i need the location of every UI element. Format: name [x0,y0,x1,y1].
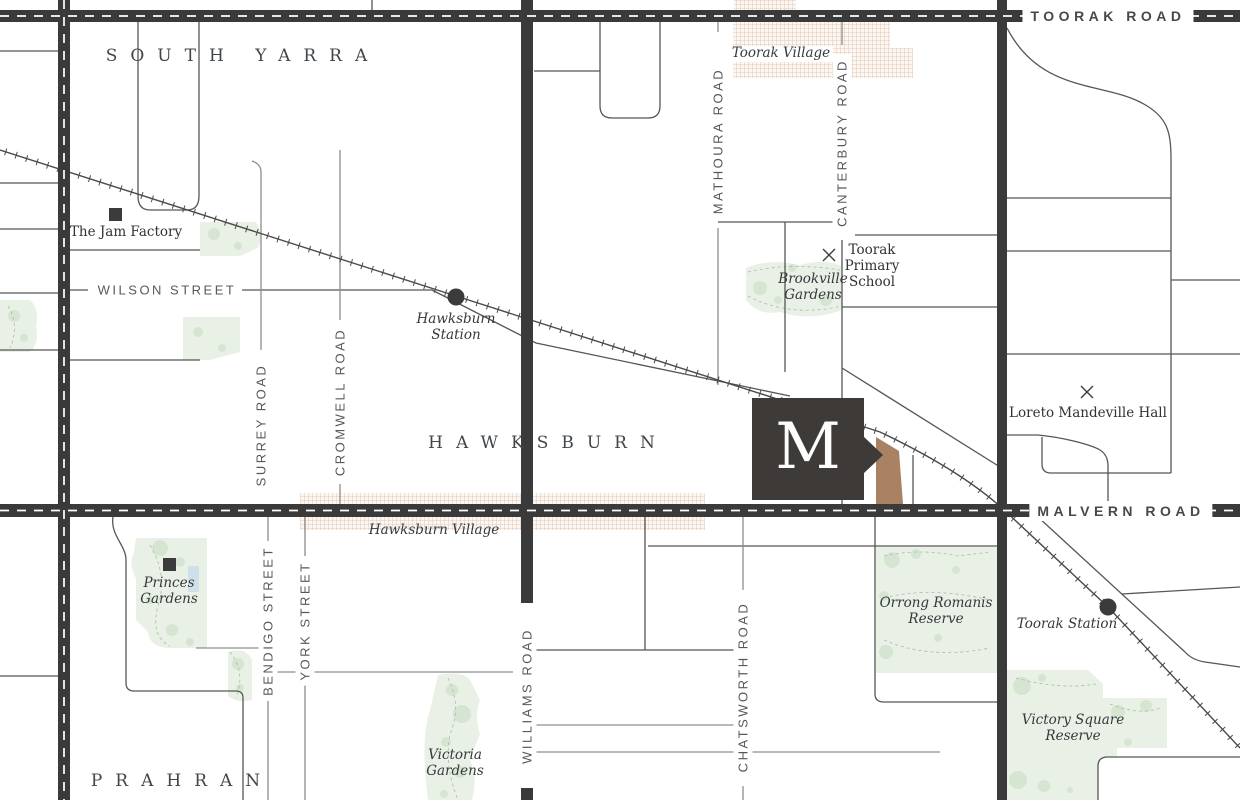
road-label-toorak: TOORAK ROAD [1022,6,1193,26]
toorak-village-hatch-step [890,48,913,78]
station-label-toorak: Toorak Station [1017,617,1117,633]
map-artwork [0,0,1240,800]
park-label-princes: Princes Gardens [140,576,198,608]
park-label-victory: Victory Square Reserve [1022,713,1124,745]
princes-gardens-square-icon [163,558,176,571]
east-road-band [997,0,1007,800]
road-label-surrey: SURREY ROAD [252,359,271,492]
area-label-hawksburn: HAWKSBURN [428,433,668,453]
village-label-hawksburn: Hawksburn Village [369,523,499,539]
toorak-station-dot-icon [1100,599,1117,616]
road-label-mathoura: MATHOURA ROAD [709,63,728,219]
road-label-bendigo: BENDIGO STREET [259,541,278,701]
landmark-label-loreto: Loreto Mandeville Hall [1009,406,1167,422]
road-label-malvern: MALVERN ROAD [1029,501,1212,521]
loreto-x-icon [1081,386,1093,398]
road-label-cromwell: CROMWELL ROAD [331,323,350,481]
park-small-wilson [183,317,240,360]
map-canvas: M SOUTH YARRA HAWKSBURN PRAHRAN TOORAK R… [0,0,1240,800]
park-label-orrong: Orrong Romanis Reserve [880,596,993,628]
williams-road-band [521,0,533,603]
toorak-primary-x-icon [823,249,835,261]
m-logo-pointer-icon [863,436,883,474]
road-label-wilson: WILSON STREET [93,281,242,300]
road-label-york: YORK STREET [296,556,315,685]
m-logo-letter: M [775,415,841,479]
park-left-edge [0,300,37,352]
park-label-victoria: Victoria Gardens [426,748,484,780]
jam-factory-square-icon [109,208,122,221]
m-brand-logo: M [752,398,864,500]
station-label-hawksburn: Hawksburn Station [417,312,496,344]
village-label-toorak: Toorak Village [729,46,833,62]
park-paths [8,266,1160,800]
landmark-label-toorak-primary: Toorak Primary School [845,243,900,291]
hawksburn-station-dot-icon [448,289,465,306]
park-label-brookville: Brookville Gardens [778,272,847,304]
road-label-canterbury: CANTERBURY ROAD [833,54,852,232]
williams-road-band-stub [521,788,533,800]
landmark-label-jam-factory: The Jam Factory [70,225,182,241]
road-label-chatsworth: CHATSWORTH ROAD [734,597,753,778]
toorak-village-hatch-north [734,0,796,10]
road-label-williams: WILLIAMS ROAD [518,623,537,769]
area-label-south-yarra: SOUTH YARRA [106,46,381,66]
area-label-prahran: PRAHRAN [91,771,273,791]
park-small-north [200,222,261,256]
